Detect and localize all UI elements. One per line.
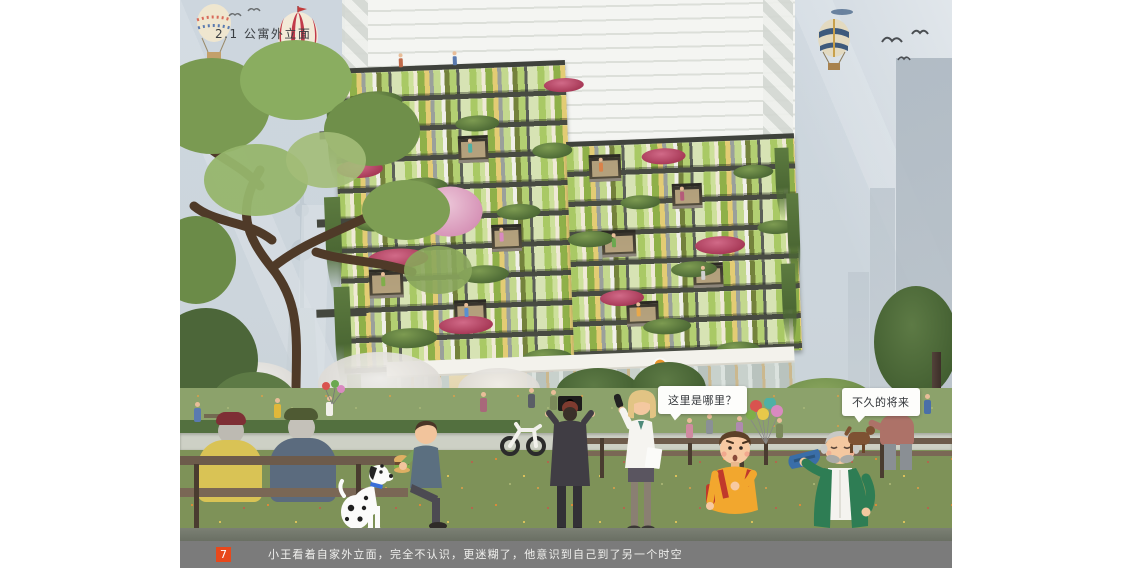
speech-bubble-elder-text: 不久的将来 [852, 396, 910, 409]
speech-bubble-elder: 不久的将来 [842, 388, 920, 416]
speech-bubble-boy-text: 这里是哪里？ [668, 394, 737, 407]
speech-bubble-boy: 这里是哪里？ [658, 386, 747, 414]
dalmatian-dog [338, 460, 396, 534]
beret [216, 412, 246, 425]
illustration-canvas: ● 招商银行 [180, 0, 952, 541]
section-title: 2.1 公寓外立面 [215, 25, 311, 42]
caption-bar: 7 小王看着自家外立面，完全不认识，更迷糊了，他意识到自己到了另一个时空 [180, 541, 952, 568]
flat-cap [284, 408, 318, 420]
tiny-person [701, 271, 705, 280]
tiny-person [680, 192, 684, 201]
tiny-person [528, 394, 535, 408]
balcony [589, 154, 622, 182]
hot-air-balloon-navy [814, 8, 854, 70]
page-number-chip: 7 [216, 547, 231, 562]
tiny-person [612, 238, 616, 247]
character-boy [700, 428, 772, 541]
presentation-page: ● 招商银行 [0, 0, 1131, 576]
foreground-path-strip [180, 528, 952, 541]
tiny-person [599, 163, 603, 172]
balance-bike [500, 418, 546, 456]
man-eating-burger [392, 418, 464, 534]
balloons-icon [320, 380, 346, 406]
caption-text: 小王看着自家外立面，完全不认识，更迷糊了，他意识到自己到了另一个时空 [268, 541, 683, 568]
photographer [542, 392, 598, 538]
tiny-person [686, 424, 693, 438]
tiny-person [636, 307, 640, 316]
tiny-person [480, 398, 487, 412]
balcony [672, 183, 703, 209]
large-park-tree [180, 10, 526, 440]
flower-cluster [544, 77, 585, 93]
birds-icon [880, 28, 932, 68]
